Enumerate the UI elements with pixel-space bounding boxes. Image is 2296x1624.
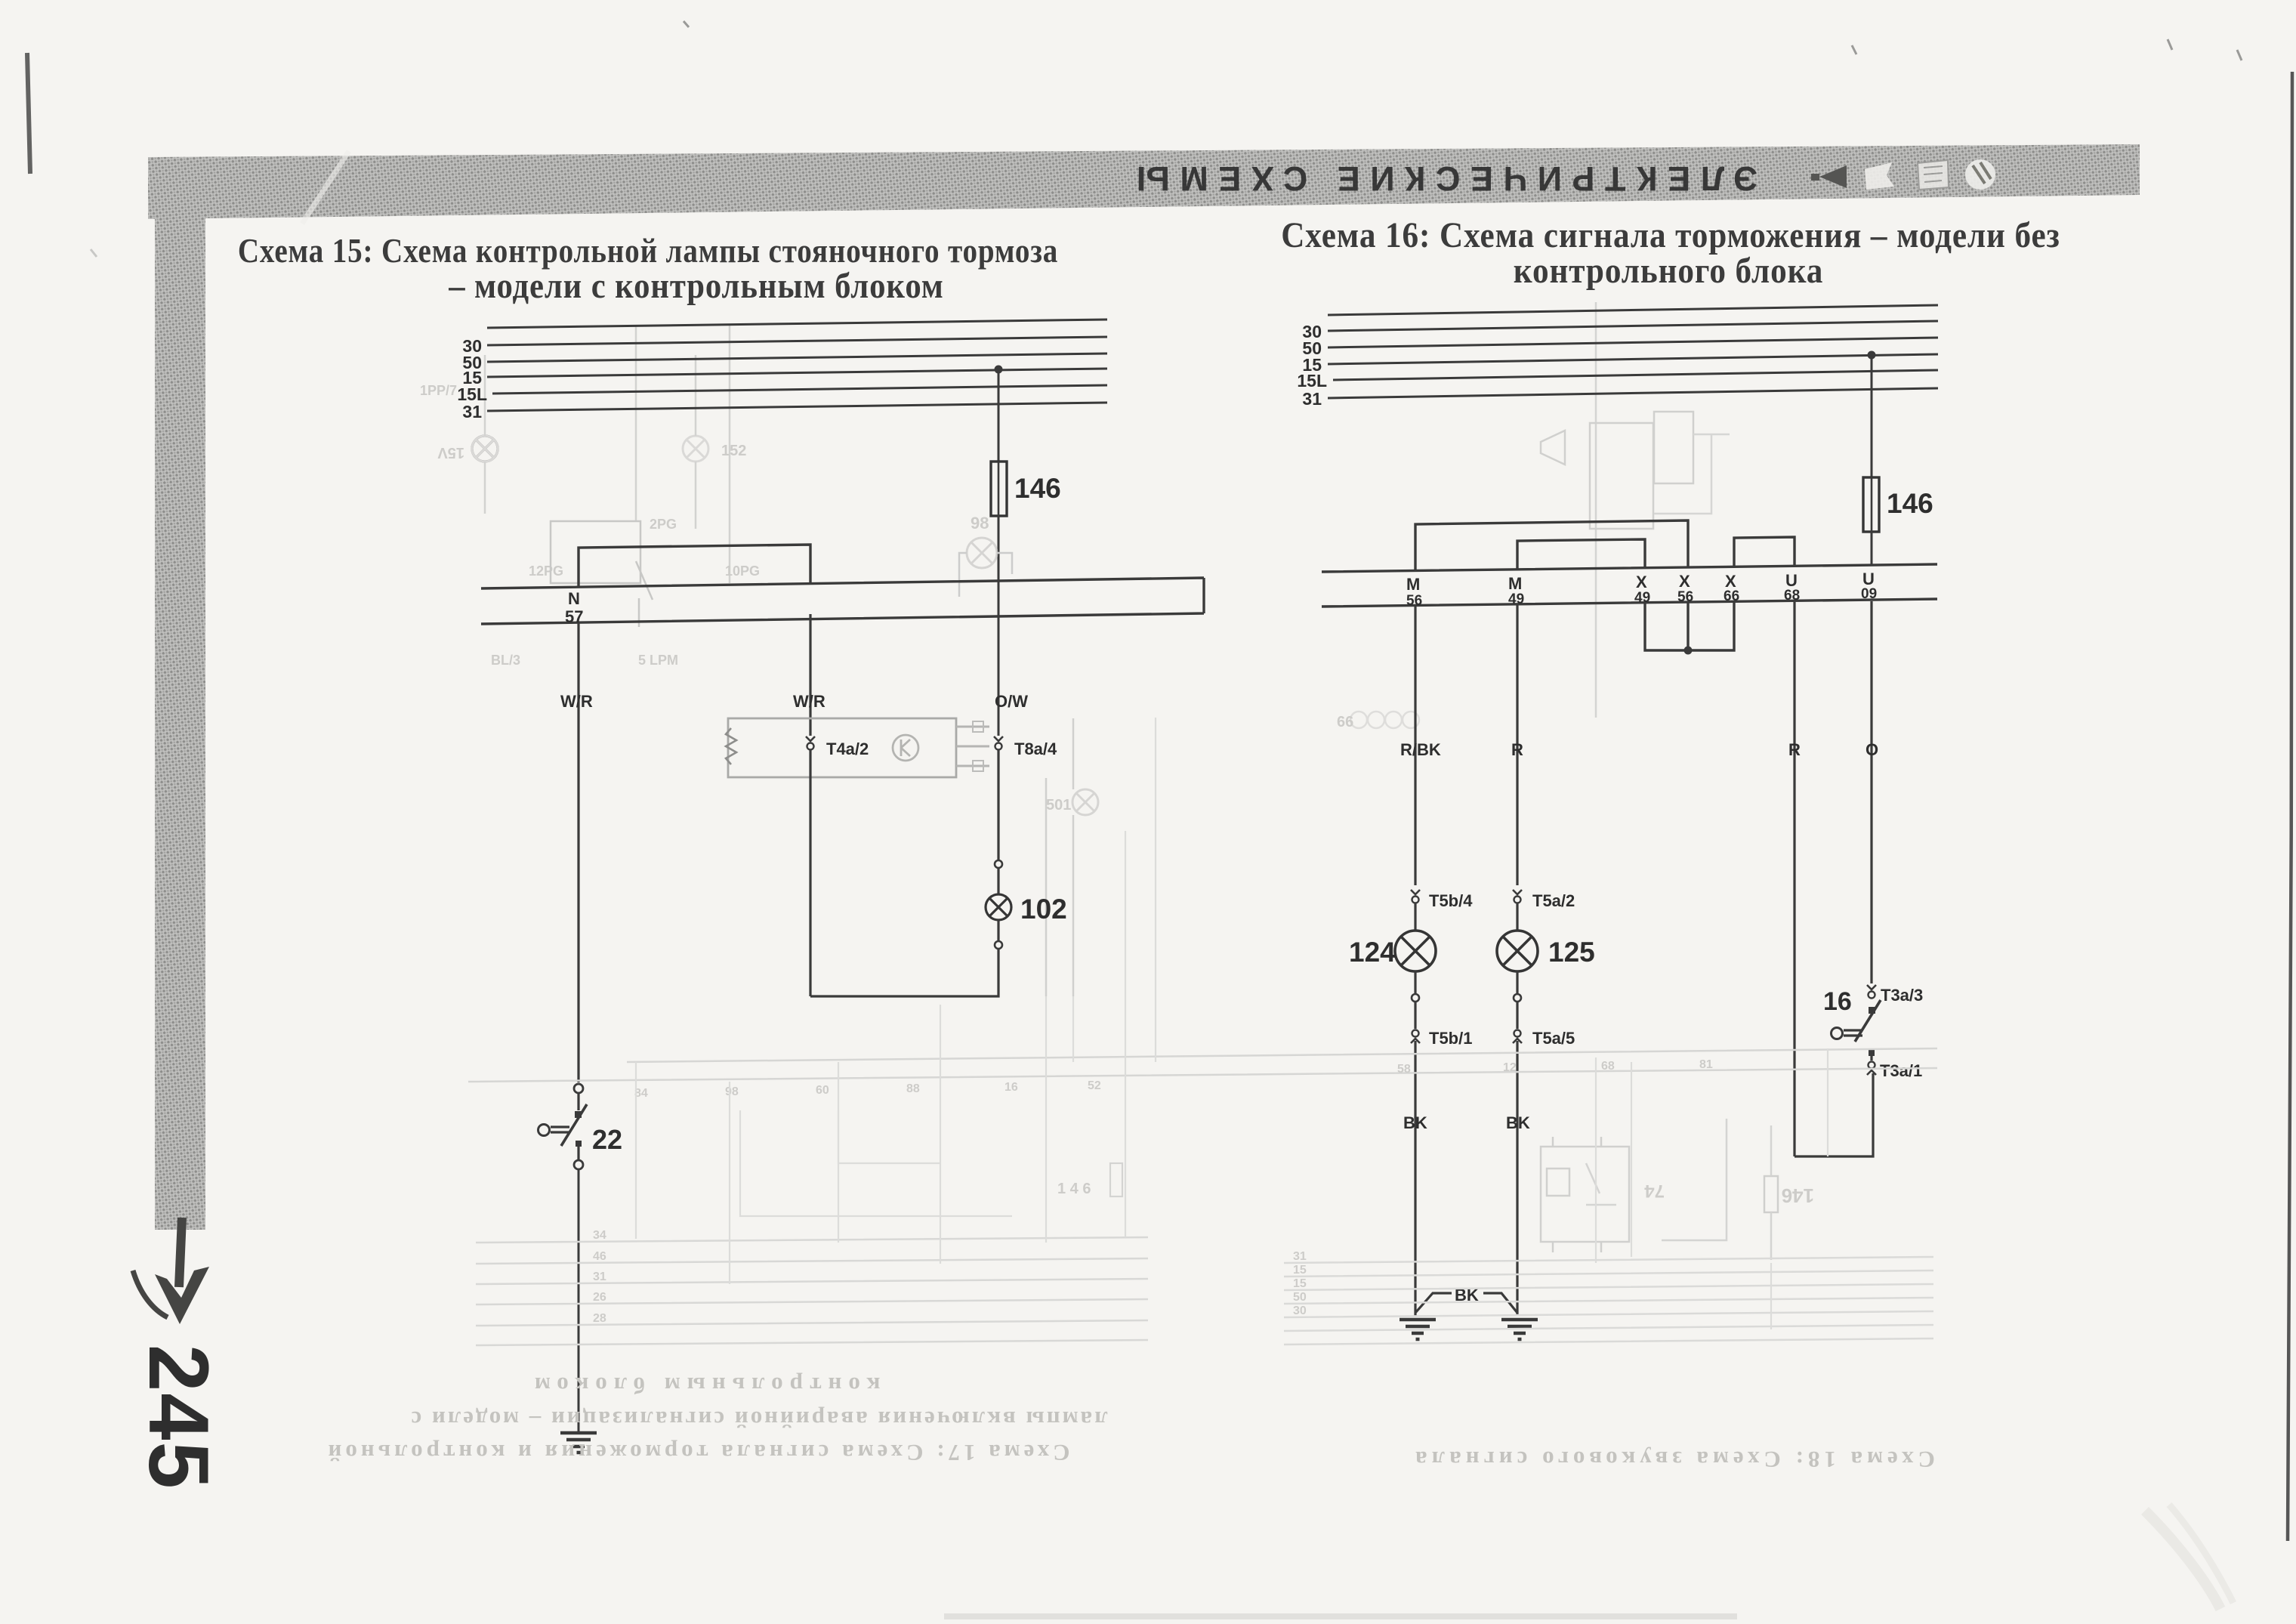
svg-text:26: 26 [593,1291,606,1304]
svg-text:контрольным блоком: контрольным блоком [528,1372,881,1399]
svg-text:98: 98 [725,1085,739,1098]
svg-text:31: 31 [593,1270,606,1283]
svg-text:68: 68 [1601,1060,1615,1073]
svg-text:50: 50 [1293,1291,1307,1304]
svg-text:30: 30 [1293,1304,1307,1317]
svg-text:лампы включения аварийной сигн: лампы включения аварийной сигнализации –… [409,1406,1107,1433]
svg-text:34: 34 [593,1229,606,1242]
svg-text:1 4 6: 1 4 6 [1057,1181,1091,1197]
svg-text:28: 28 [593,1312,606,1325]
svg-text:15: 15 [1293,1277,1307,1290]
svg-text:12: 12 [1503,1061,1517,1074]
svg-text:60: 60 [816,1084,829,1097]
svg-text:52: 52 [1088,1079,1101,1092]
svg-text:Схема 17: Схема сигнала тормож: Схема 17: Схема сигнала торможения и кон… [324,1440,1069,1466]
svg-text:15: 15 [1293,1264,1307,1277]
svg-text:Схема 18: Схема звукового сигн: Схема 18: Схема звукового сигнала [1411,1446,1935,1473]
svg-text:88: 88 [906,1082,920,1095]
svg-text:58: 58 [1397,1063,1411,1076]
svg-text:31: 31 [1293,1250,1307,1263]
svg-text:46: 46 [593,1250,606,1263]
svg-text:16: 16 [1004,1081,1018,1094]
svg-text:81: 81 [1699,1058,1713,1071]
